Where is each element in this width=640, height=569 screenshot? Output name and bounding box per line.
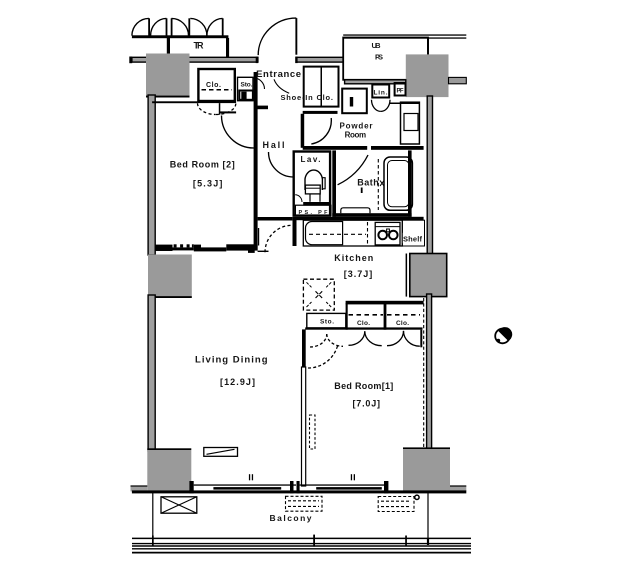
svg-text:Bed Room [2]: Bed Room [2]	[170, 160, 235, 170]
svg-text:Sto.: Sto.	[320, 319, 334, 326]
svg-text:Hall: Hall	[263, 140, 285, 150]
svg-text:TR: TR	[194, 41, 205, 51]
svg-text:Lav.: Lav.	[301, 155, 321, 164]
svg-text:Clo.: Clo.	[396, 320, 409, 327]
svg-text:Room: Room	[345, 131, 367, 140]
svg-text:Clo.: Clo.	[206, 82, 221, 89]
svg-text:Lin.: Lin.	[374, 90, 388, 97]
svg-text:Shoe-In Clo.: Shoe-In Clo.	[281, 93, 334, 102]
svg-text:Kitchen: Kitchen	[334, 253, 373, 263]
svg-text:[5.3J]: [5.3J]	[193, 179, 223, 189]
svg-text:Bed Room[1]: Bed Room[1]	[334, 381, 393, 391]
svg-text:[12.9J]: [12.9J]	[220, 377, 255, 387]
svg-text:Shelf: Shelf	[403, 235, 423, 244]
svg-text:[7.0J]: [7.0J]	[353, 399, 381, 409]
svg-text:PS: PS	[375, 53, 383, 62]
svg-text:Powder: Powder	[340, 122, 373, 131]
svg-text:[3.7J]: [3.7J]	[344, 269, 373, 279]
svg-text:Sto.: Sto.	[241, 82, 253, 89]
svg-text:UB: UB	[372, 41, 382, 50]
svg-text:PF: PF	[397, 89, 404, 95]
svg-text:Living Dining: Living Dining	[195, 354, 268, 365]
svg-text:Bath: Bath	[357, 178, 379, 188]
svg-text:Entrance: Entrance	[256, 69, 301, 80]
svg-text:Clo.: Clo.	[357, 320, 370, 327]
